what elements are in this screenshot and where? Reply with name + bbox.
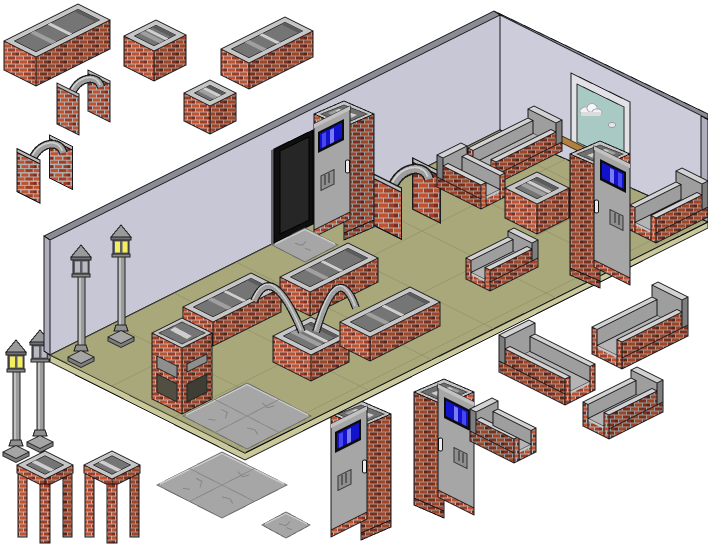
brick-planter-medium[interactable]	[124, 20, 186, 81]
pixel-art-scene	[0, 0, 708, 546]
metal-locker-with-chimney[interactable]	[314, 101, 374, 240]
stone-tile-patch-small[interactable]	[262, 512, 310, 538]
brick-table[interactable]	[84, 451, 140, 543]
brick-walls-with-pipe[interactable]	[17, 135, 73, 203]
metal-locker-with-chimney[interactable]	[414, 379, 474, 518]
isometric-scene-svg	[0, 0, 708, 546]
brick-tower-stand[interactable]	[152, 318, 212, 414]
dark-doorway[interactable]	[271, 130, 313, 244]
brick-armchair[interactable]	[470, 398, 536, 463]
metal-locker-with-chimney[interactable]	[570, 141, 630, 288]
brick-table[interactable]	[17, 451, 73, 543]
brick-planter-small[interactable]	[184, 80, 236, 134]
stone-tile-patch-large[interactable]	[157, 452, 287, 518]
lamp-post-lit[interactable]	[3, 340, 29, 463]
brick-sofa-large[interactable]	[592, 282, 688, 369]
brick-sofa[interactable]	[499, 320, 595, 405]
metal-locker-with-chimney[interactable]	[331, 401, 391, 540]
brick-walls-with-pipe[interactable]	[57, 70, 110, 135]
brick-planter-long[interactable]	[221, 17, 313, 89]
